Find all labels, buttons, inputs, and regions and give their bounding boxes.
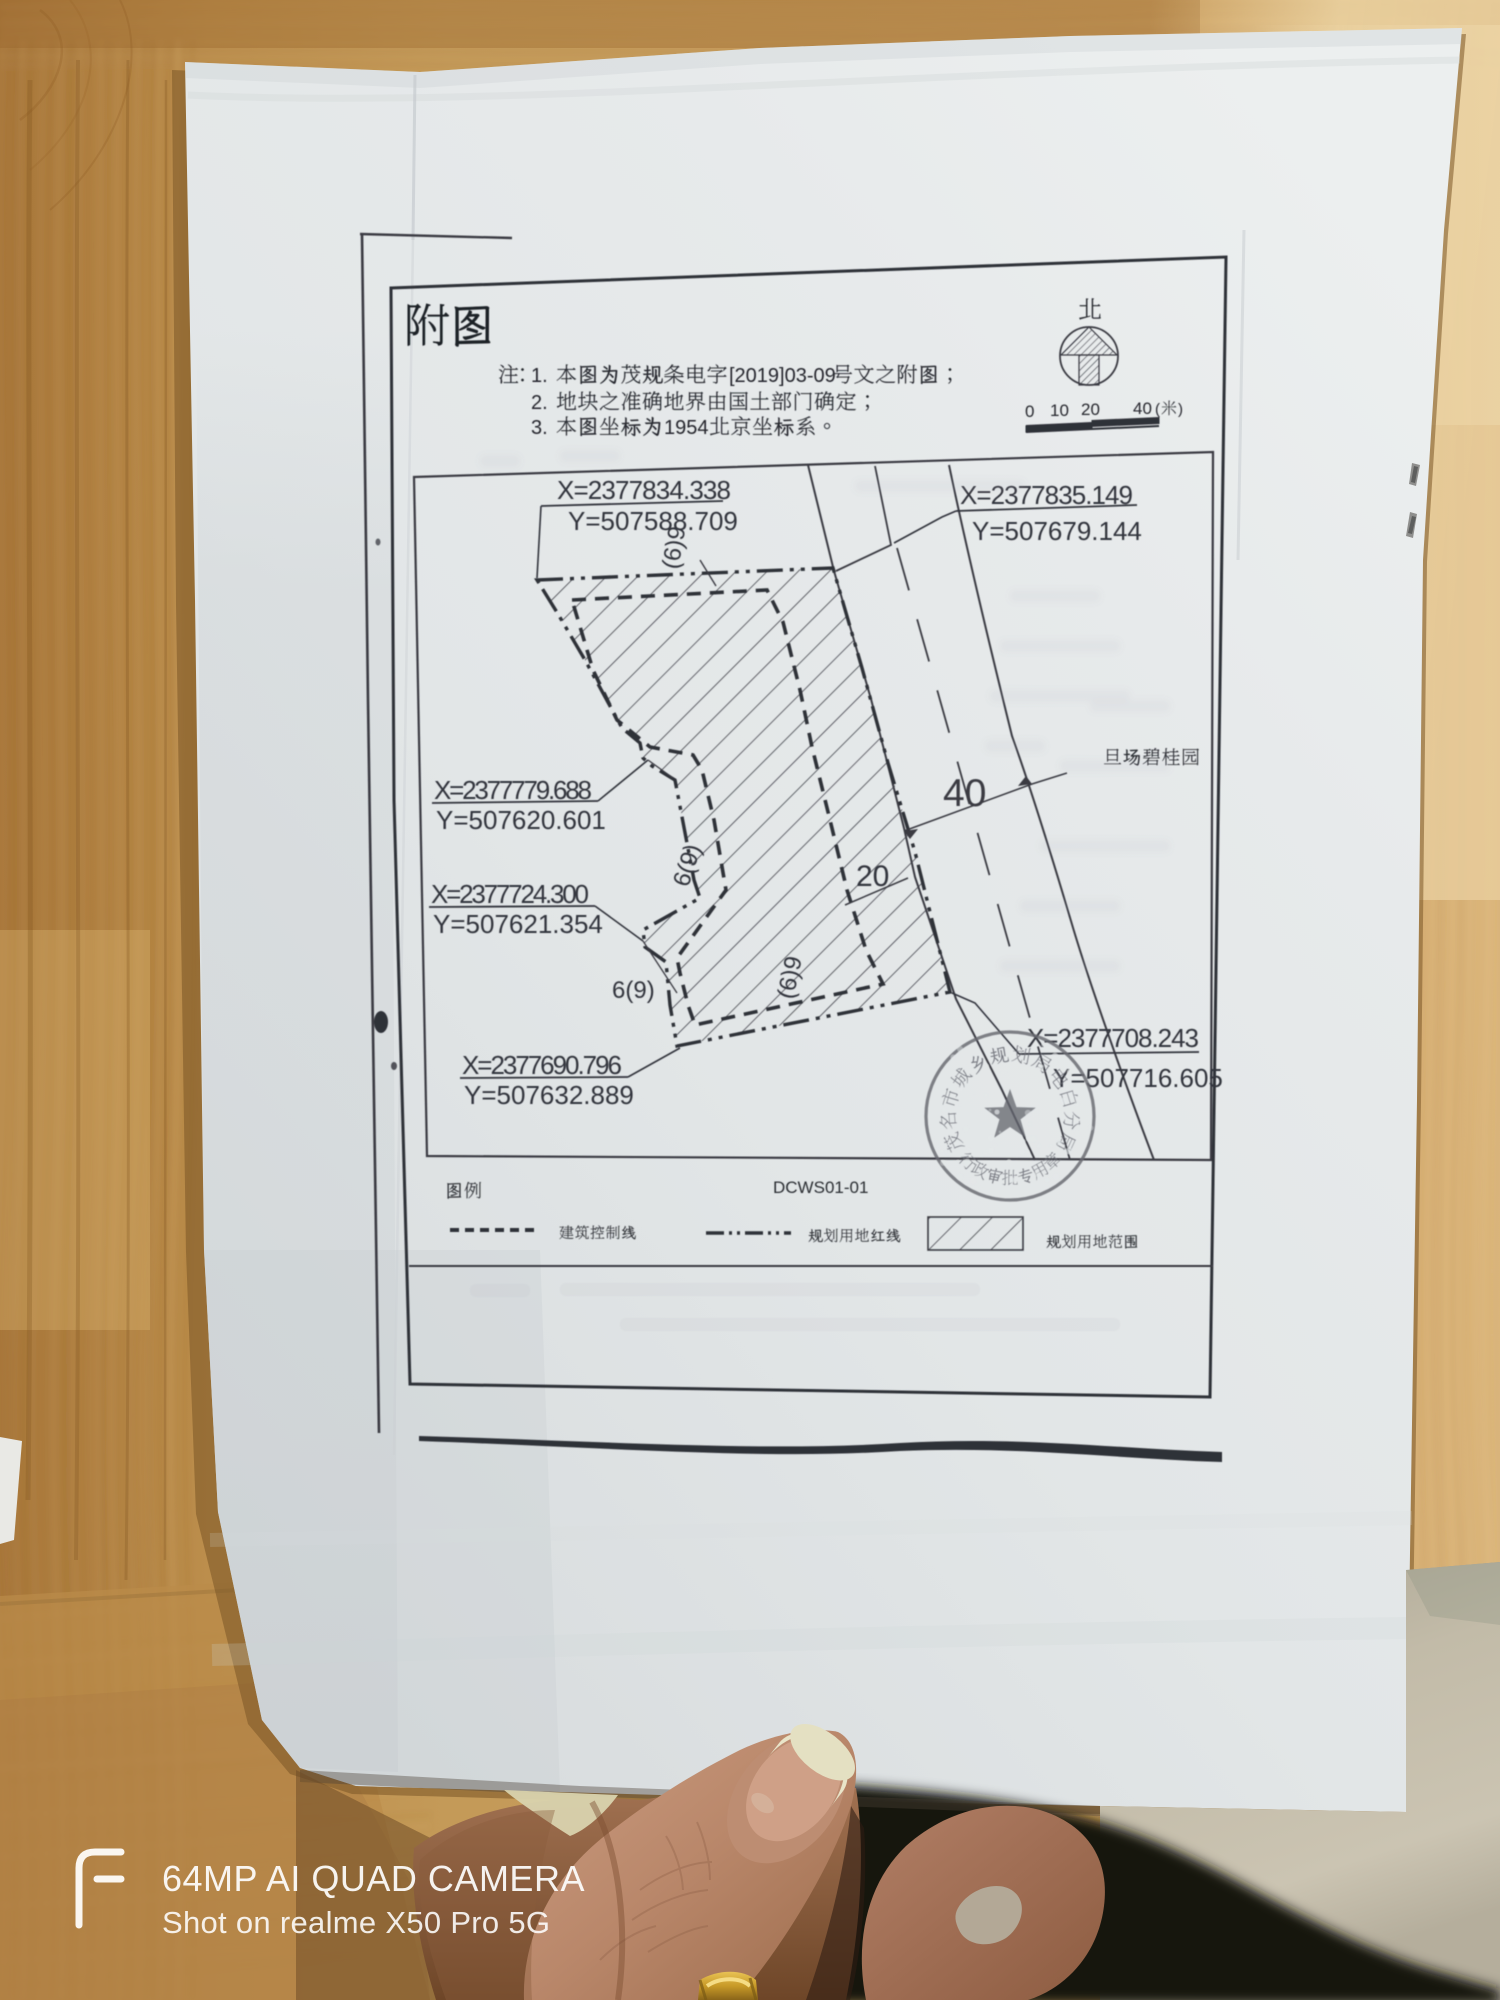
svg-text:1.: 1. [531, 365, 548, 387]
svg-text:64MP AI QUAD CAMERA: 64MP AI QUAD CAMERA [162, 1858, 585, 1899]
svg-text:10: 10 [1050, 401, 1069, 420]
svg-text:Y=507620.601: Y=507620.601 [436, 805, 606, 835]
svg-text:20: 20 [1081, 400, 1100, 419]
svg-text:Y=507679.144: Y=507679.144 [972, 516, 1142, 546]
svg-text:1954: 1954 [664, 417, 709, 439]
svg-text:[2019]03-09: [2019]03-09 [729, 365, 836, 387]
svg-text:): ) [1178, 401, 1183, 418]
svg-text:40: 40 [1133, 399, 1152, 418]
svg-text:X=2377690.796: X=2377690.796 [462, 1050, 622, 1080]
svg-text:X=2377708.243: X=2377708.243 [1027, 1023, 1199, 1053]
svg-text:X=2377724.300: X=2377724.300 [431, 879, 589, 909]
svg-text:Y=507588.709: Y=507588.709 [568, 506, 738, 536]
svg-text:0: 0 [1025, 402, 1034, 421]
svg-text:2.: 2. [531, 392, 548, 414]
svg-text:Y=507621.354: Y=507621.354 [433, 909, 603, 939]
svg-text:Shot on realme X50 Pro 5G: Shot on realme X50 Pro 5G [162, 1905, 550, 1940]
svg-text:6(9): 6(9) [612, 977, 655, 1004]
svg-text:40: 40 [943, 772, 986, 815]
svg-text:X=2377834.338: X=2377834.338 [557, 475, 731, 505]
svg-text:Y=507632.889: Y=507632.889 [464, 1080, 634, 1110]
svg-text:DCWS01-01: DCWS01-01 [773, 1178, 868, 1197]
svg-text:3.: 3. [531, 417, 548, 439]
svg-text:(: ( [1155, 401, 1160, 418]
